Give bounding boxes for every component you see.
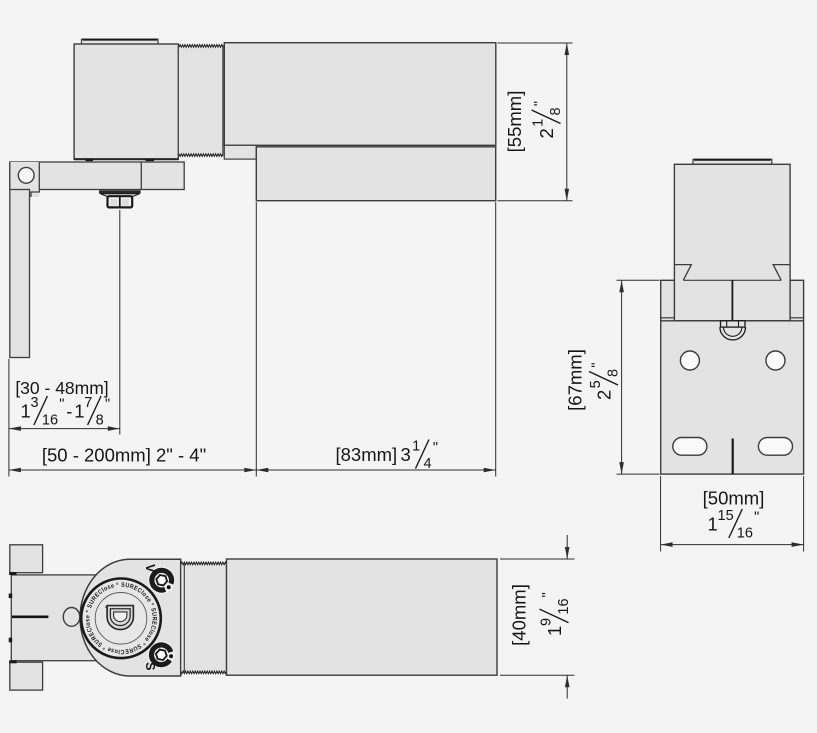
svg-text:-: - — [66, 401, 72, 422]
svg-text:1: 1 — [544, 626, 565, 636]
svg-text:5: 5 — [588, 380, 604, 388]
svg-text:[40mm]: [40mm] — [509, 584, 530, 646]
svg-text:3: 3 — [31, 395, 39, 411]
svg-text:16: 16 — [556, 598, 572, 614]
svg-text:15: 15 — [718, 508, 734, 524]
svg-text:8: 8 — [606, 369, 622, 377]
svg-text:1: 1 — [708, 514, 718, 535]
svg-text:": " — [433, 440, 438, 456]
svg-text:7: 7 — [84, 395, 92, 411]
svg-text:1: 1 — [21, 401, 31, 422]
svg-text:9: 9 — [539, 618, 555, 626]
svg-text:": " — [532, 101, 548, 106]
svg-text:1: 1 — [412, 439, 420, 455]
svg-text:V: V — [143, 564, 157, 573]
svg-text:": " — [540, 592, 556, 597]
svg-text:": " — [59, 397, 64, 413]
svg-text:3: 3 — [401, 444, 411, 465]
svg-text:": " — [590, 362, 606, 367]
svg-text:8: 8 — [548, 107, 564, 115]
svg-text:[67mm]: [67mm] — [565, 349, 586, 411]
svg-text:2: 2 — [536, 128, 557, 138]
svg-text:S: S — [143, 662, 157, 670]
svg-text:[30 - 48mm]: [30 - 48mm] — [15, 378, 108, 398]
svg-text:16: 16 — [42, 413, 58, 429]
svg-text:[50mm]: [50mm] — [703, 488, 765, 509]
svg-text:1: 1 — [531, 119, 547, 127]
svg-text:": " — [105, 397, 110, 413]
svg-text:[83mm]: [83mm] — [336, 444, 398, 465]
svg-text:": " — [754, 510, 759, 526]
svg-text:16: 16 — [737, 526, 753, 542]
svg-text:2: 2 — [594, 390, 615, 400]
svg-text:4: 4 — [424, 456, 432, 472]
svg-text:8: 8 — [96, 413, 104, 429]
svg-text:1: 1 — [74, 401, 84, 422]
svg-text:[55mm]: [55mm] — [504, 91, 525, 153]
svg-text:[50 - 200mm] 2" - 4": [50 - 200mm] 2" - 4" — [42, 445, 206, 466]
